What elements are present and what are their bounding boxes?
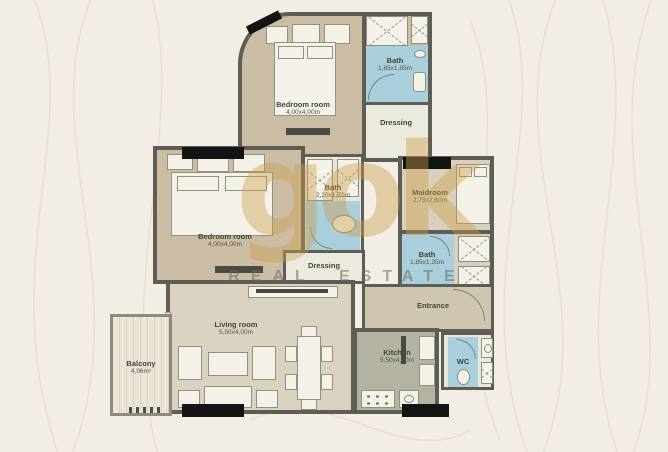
room-name: Bath: [402, 250, 452, 259]
toilet: [413, 72, 426, 92]
sink-basin: [484, 344, 492, 353]
room-name: Bath: [305, 183, 361, 192]
bed-bench: [215, 266, 263, 273]
room-name: Bedroom room: [169, 232, 281, 241]
room-dims: 1,85x1,85m: [366, 65, 424, 73]
room-label-bedroom-mid: Bedroom room 4,00x4,00m: [169, 232, 281, 250]
room-label-bath-mid: Bath 2,20x1,70m: [305, 183, 361, 201]
room-label-balcony: Balcony 4,96m²: [113, 359, 169, 377]
cabinet: [324, 24, 350, 44]
room-dims: 4,00x4,00m: [246, 109, 360, 117]
coffee-table: [208, 352, 248, 376]
window-lintel: [182, 147, 244, 159]
bed-bench: [286, 128, 330, 135]
laundry-box: [458, 266, 490, 286]
room-label-bath-top: Bath 1,85x1,85m: [366, 56, 424, 74]
room-name: Bath: [366, 56, 424, 65]
room-dims: 2,20x1,70m: [305, 192, 361, 200]
door-arc-bath-mid: [310, 227, 332, 249]
room-name: WC: [448, 357, 478, 366]
room-kitchen: Kitchen 5,50x4,00m: [353, 328, 439, 414]
room-label-entrance: Entrance: [393, 301, 473, 310]
room-label-dressing-mid: Dressing: [286, 261, 362, 270]
dining-chair: [285, 346, 297, 362]
armchair: [178, 346, 202, 380]
room-entrance: Entrance: [362, 284, 494, 332]
sink-basin: [404, 395, 414, 403]
room-label-bath-maid: Bath 1,85x1,35m: [402, 250, 452, 268]
room-wc: WC: [441, 332, 494, 390]
pillow: [278, 46, 304, 59]
shower-maid: [458, 236, 490, 262]
room-dims: 5,50x4,00m: [184, 329, 288, 337]
wc-floor: WC: [448, 337, 478, 387]
tv: [256, 289, 328, 293]
room-bedroom-top: Bedroom room 4,00x4,00m Bath 1,85x1,85m …: [238, 12, 432, 162]
room-label-maidroom: Maidroom 2,75x2,60m: [402, 188, 458, 206]
toilet: [457, 369, 470, 385]
bathtub: [332, 215, 356, 233]
balcony-railing: [129, 407, 163, 413]
room-dims: 1,85x1,35m: [402, 259, 452, 267]
room-label-living: Living room 5,50x4,00m: [184, 320, 288, 338]
room-name: Entrance: [393, 301, 473, 310]
wc-sink: [481, 338, 493, 358]
room-name: Dressing: [364, 118, 428, 127]
stove: [361, 390, 395, 408]
cabinet: [292, 24, 320, 44]
dining-chair: [321, 374, 333, 390]
room-name: Balcony: [113, 359, 169, 368]
dining-chair: [321, 346, 333, 362]
window-lintel: [182, 404, 244, 417]
room-living: Living room 5,50x4,00m: [166, 280, 355, 414]
wc-shower-box: [481, 362, 493, 384]
fridge: [419, 336, 435, 360]
pillow: [225, 176, 267, 191]
floorplan-canvas: Bedroom room 4,00x4,00m Bath 1,85x1,85m …: [0, 0, 668, 452]
room-bath-mid: Bath 2,20x1,70m: [302, 154, 364, 254]
room-dressing-mid: Dressing: [283, 250, 365, 284]
room-name: Maidroom: [402, 188, 458, 197]
side-table: [256, 390, 278, 408]
pillow: [459, 167, 472, 177]
bath-maid-floor: Bath 1,85x1,35m: [402, 234, 454, 286]
counter-strip: [401, 336, 406, 364]
bath-top-floor: Bath 1,85x1,85m: [366, 46, 428, 102]
tall-cabinet: [419, 364, 435, 386]
room-name: Bedroom room: [246, 100, 360, 109]
window-lintel: [403, 157, 451, 169]
pillow: [177, 176, 219, 191]
room-dims: 4,96m²: [113, 368, 169, 376]
room-dims: 4,00x4,00m: [169, 241, 281, 249]
room-name: Dressing: [286, 261, 362, 270]
room-label-bedroom-top: Bedroom room 4,00x4,00m: [246, 100, 360, 118]
room-label-dressing-top: Dressing: [364, 118, 428, 127]
shower-top: [366, 16, 408, 46]
closet-box: [411, 16, 428, 44]
dining-table: [297, 336, 321, 400]
door-arc-wc: [456, 339, 476, 359]
partition-wall: [366, 102, 428, 105]
pillow: [307, 46, 333, 59]
room-maid-wing: Maidroom 2,75x2,60m Bath 1,85x1,35m: [398, 156, 494, 290]
room-balcony: Balcony 4,96m²: [110, 314, 172, 416]
dressing-top-floor: [366, 102, 428, 158]
armchair: [252, 346, 276, 380]
room-name: Living room: [184, 320, 288, 329]
door-arc-bath-top: [368, 74, 394, 100]
pillow: [474, 167, 487, 177]
room-dims: 2,75x2,60m: [402, 197, 458, 205]
bed-double: [171, 172, 273, 236]
bed-single: [456, 164, 490, 224]
window-lintel: [402, 404, 449, 417]
bath-mid-floor: [306, 201, 360, 251]
dining-chair: [285, 374, 297, 390]
room-label-wc: WC: [448, 357, 478, 366]
